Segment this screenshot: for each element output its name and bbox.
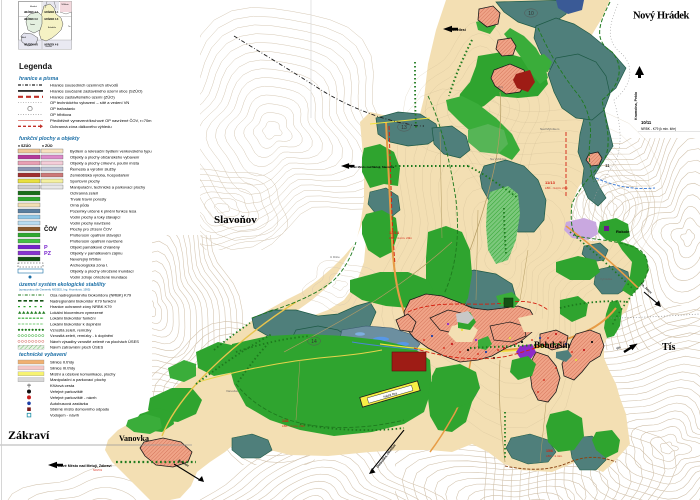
svg-text:Manipulační a parkovací plochy: Manipulační a parkovací plochy xyxy=(50,377,106,382)
svg-text:Mezilesí: Mezilesí xyxy=(452,28,467,32)
svg-text:Vodojem - návrh: Vodojem - návrh xyxy=(50,413,79,418)
svg-text:Lokální biokoridor k doplnění: Lokální biokoridor k doplnění xyxy=(50,322,102,327)
svg-text:13/14: 13/14 xyxy=(389,230,400,235)
svg-text:Bydlení a rekreační bydlení ve: Bydlení a rekreační bydlení venkovského … xyxy=(70,149,152,154)
svg-text:Bohdašín: Bohdašín xyxy=(48,27,56,29)
svg-text:LBK - š.min. 20m: LBK - š.min. 20m xyxy=(389,236,413,240)
svg-text:Návrh zatravnění ploch ÚSES: Návrh zatravnění ploch ÚSES xyxy=(50,345,103,350)
svg-text:13: 13 xyxy=(401,125,407,131)
svg-text:Veřejné parkoviště: Veřejné parkoviště xyxy=(50,389,84,394)
svg-text:Bohdašín: Bohdašín xyxy=(534,340,570,350)
svg-text:Nové Město nad Metují, Zákraví: Nové Město nad Metují, Zákraví xyxy=(58,464,113,468)
svg-text:Na Vyhlídce: Na Vyhlídce xyxy=(490,157,506,161)
svg-text:Hranice zastavitelného území (: Hranice zastavitelného území (ZÚO) xyxy=(50,94,115,99)
svg-text:Tis: Tis xyxy=(68,26,71,28)
svg-text:Nové Město nad Metují, Slavoňo: Nové Město nad Metují, Slavoňov xyxy=(350,165,395,169)
svg-text:N.Město: N.Město xyxy=(62,3,69,6)
svg-text:PZ: PZ xyxy=(44,251,52,257)
svg-text:ČOV: ČOV xyxy=(44,226,57,233)
svg-text:HRÁDEK 4-4: HRÁDEK 4-4 xyxy=(45,11,60,14)
svg-text:14: 14 xyxy=(311,339,317,345)
svg-text:Nadregionální biokoridor K79 f: Nadregionální biokoridor K79 funkční xyxy=(50,298,117,303)
svg-text:Vzrostlá zeleň, remízky: Vzrostlá zeleň, remízky xyxy=(50,327,91,332)
svg-text:HRÁDEK 6-6: HRÁDEK 6-6 xyxy=(24,18,39,21)
svg-text:Nový Hrádek: Nový Hrádek xyxy=(633,11,690,22)
svg-text:Tís: Tís xyxy=(662,342,675,353)
svg-text:LBK - š.min. 20m: LBK - š.min. 20m xyxy=(282,424,306,428)
svg-text:v ZÚO: v ZÚO xyxy=(42,143,53,148)
svg-text:Trvalé travní porosty: Trvalé travní porosty xyxy=(70,197,106,202)
svg-text:Mezilesí: Mezilesí xyxy=(30,6,37,8)
svg-text:Hranice ochranné zóny NRBK K79: Hranice ochranné zóny NRBK K79 xyxy=(50,304,112,309)
svg-text:Ohnišov: Ohnišov xyxy=(45,46,52,48)
svg-text:(zpracováno dle Generelu MÚSES: (zpracováno dle Generelu MÚSES, Ing. Hro… xyxy=(19,287,90,292)
svg-text:Slavoňov: Slavoňov xyxy=(214,214,257,226)
svg-text:Předběžně vymezené/kruhové OP: Předběžně vymezené/kruhové OP navržené Č… xyxy=(50,118,152,123)
svg-text:HRÁDEK 4-6: HRÁDEK 4-6 xyxy=(45,18,60,21)
svg-text:Plochy pro zřízení ČOV: Plochy pro zřízení ČOV xyxy=(70,227,112,232)
svg-text:LBK - š.min. 20m: LBK - š.min. 20m xyxy=(545,186,569,190)
svg-text:Vodní plochy navržené: Vodní plochy navržené xyxy=(70,221,111,226)
svg-text:NRBK - K79 (k min. šíře): NRBK - K79 (k min. šíře) xyxy=(641,127,676,131)
svg-text:Zemědělská výroba, hospodaření: Zemědělská výroba, hospodaření xyxy=(70,173,130,178)
svg-text:Objekty a plochy ohrožené inun: Objekty a plochy ohrožené inundací xyxy=(70,269,134,274)
svg-text:Sběrné místo domovního odpadu: Sběrné místo domovního odpadu xyxy=(50,407,109,412)
svg-text:Objekt památkově chráněný: Objekt památkově chráněný xyxy=(70,245,120,250)
svg-text:Rzy: Rzy xyxy=(498,85,504,89)
svg-text:Ochranná zeleň: Ochranná zeleň xyxy=(70,191,98,196)
svg-text:Archeologická zóna I.: Archeologická zóna I. xyxy=(70,263,108,268)
svg-text:15/6: 15/6 xyxy=(546,449,553,453)
svg-text:Objekty v památkovém zájmu: Objekty v památkovém zájmu xyxy=(70,251,122,256)
svg-text:Sportovní plochy: Sportovní plochy xyxy=(70,179,100,184)
svg-text:Zákraví: Zákraví xyxy=(8,428,50,442)
svg-text:OP technického vybavení – sítě: OP technického vybavení – sítě a vedení … xyxy=(50,100,129,105)
svg-text:Lokální biokoridor funkční: Lokální biokoridor funkční xyxy=(50,316,96,321)
svg-text:Lokální biocentrum vymezené: Lokální biocentrum vymezené xyxy=(50,310,104,315)
svg-text:Autobusová zastávka: Autobusová zastávka xyxy=(50,401,89,406)
svg-text:10: 10 xyxy=(528,11,534,17)
svg-text:Návrh výsadby vzrostlé zeleně: Návrh výsadby vzrostlé zeleně na plochác… xyxy=(50,339,139,344)
svg-text:Vodní plochy a toky stávající: Vodní plochy a toky stávající xyxy=(70,215,121,220)
svg-text:Vodní zdroje ohrožené inundace: Vodní zdroje ohrožené inundace xyxy=(70,275,128,280)
svg-text:Objekty a plochy občanského vy: Objekty a plochy občanského vybavení xyxy=(70,155,140,160)
svg-text:Hranice sousedních územních ob: Hranice sousedních územních obvodů xyxy=(50,83,118,88)
svg-text:LBC - š.min.: LBC - š.min. xyxy=(546,454,563,458)
svg-text:Silnice II.třídy: Silnice II.třídy xyxy=(50,360,74,365)
svg-text:Protierosní opatření navržené: Protierosní opatření navržené xyxy=(70,239,123,244)
svg-text:Rokole: Rokole xyxy=(616,229,630,234)
svg-text:technické vybavení: technické vybavení xyxy=(19,352,67,358)
svg-text:funkční plochy a objekty: funkční plochy a objekty xyxy=(19,136,81,142)
svg-text:HRÁDEK 8-8: HRÁDEK 8-8 xyxy=(24,44,39,47)
svg-text:10/11: 10/11 xyxy=(641,120,652,125)
svg-text:Neveřejný hřbitov: Neveřejný hřbitov xyxy=(70,257,101,262)
svg-text:Manipulační, technické a parko: Manipulační, technické a parkovací ploch… xyxy=(70,185,145,190)
svg-text:Janov: Janov xyxy=(30,24,35,26)
svg-text:Řemesla a výrobní služby: Řemesla a výrobní služby xyxy=(70,167,116,172)
svg-text:OP hřbitova: OP hřbitova xyxy=(50,112,72,117)
svg-text:Objekty a plochy církevní, pou: Objekty a plochy církevní, poutní místa xyxy=(70,161,140,166)
svg-text:NOVO1: NOVO1 xyxy=(93,468,103,472)
svg-text:Pozemky určené k plnění funkce: Pozemky určené k plnění funkce lesa xyxy=(70,209,137,214)
svg-text:Kramolna, Peklo: Kramolna, Peklo xyxy=(634,91,638,120)
svg-text:hranice a písma: hranice a písma xyxy=(19,76,58,82)
svg-text:OP trafostanic: OP trafostanic xyxy=(50,106,75,111)
svg-text:U Dílce: U Dílce xyxy=(330,255,340,259)
svg-text:Křížová cesta: Křížová cesta xyxy=(50,383,75,388)
svg-text:Vanovka: Vanovka xyxy=(119,434,149,443)
svg-text:Ochranná zóna dálkového výhled: Ochranná zóna dálkového výhledu xyxy=(50,124,112,129)
svg-text:Vzrostlá zeleň, remízky - k do: Vzrostlá zeleň, remízky - k doplnění xyxy=(50,333,114,338)
svg-text:Orná půda: Orná půda xyxy=(70,203,90,208)
svg-text:Nad Mýtníkem: Nad Mýtníkem xyxy=(540,127,560,131)
svg-text:v SZÚO: v SZÚO xyxy=(18,143,31,148)
svg-text:Vyhlédka: Vyhlédka xyxy=(600,277,613,281)
svg-text:11/13: 11/13 xyxy=(545,180,556,185)
svg-text:Veřejné parkoviště - návrh: Veřejné parkoviště - návrh xyxy=(50,395,96,400)
svg-text:Osa nadregionálního biokoridor: Osa nadregionálního biokoridoru (NRBK) K… xyxy=(50,293,132,298)
svg-text:Místní a účelové komunikace, p: Místní a účelové komunikace, plochy xyxy=(50,371,115,376)
svg-text:Silnice III.třídy: Silnice III.třídy xyxy=(50,365,75,370)
svg-text:Vánovka: Vánovka xyxy=(226,389,238,393)
svg-text:TÁLA: TÁLA xyxy=(21,36,26,39)
svg-text:Hranice současně zastavěného ú: Hranice současně zastavěného území obce … xyxy=(50,88,143,93)
svg-text:11: 11 xyxy=(605,163,610,168)
svg-text:Legenda: Legenda xyxy=(19,62,52,71)
svg-text:HRÁDEK 4-4: HRÁDEK 4-4 xyxy=(24,11,39,14)
svg-text:Protierosní opatření stávající: Protierosní opatření stávající xyxy=(70,233,122,238)
svg-text:14A: 14A xyxy=(282,419,289,423)
